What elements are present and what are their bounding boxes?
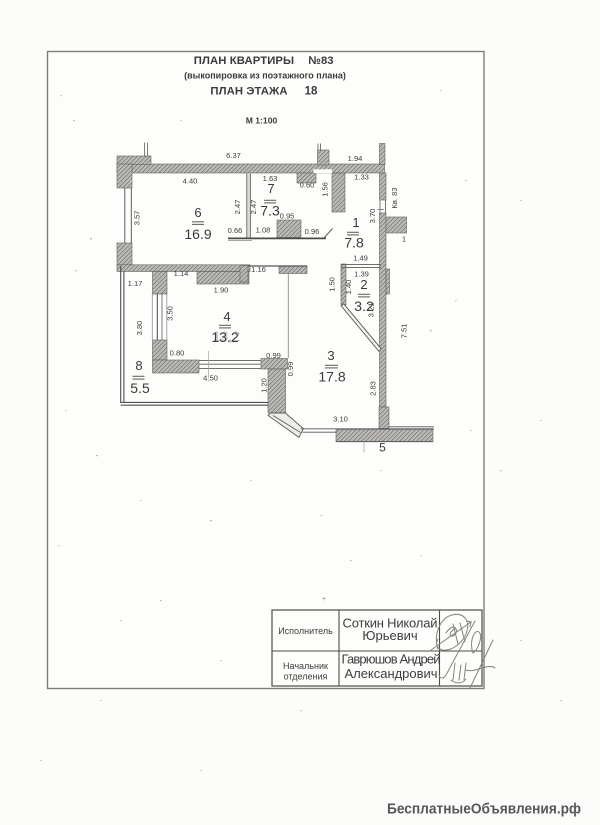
svg-text:1.56: 1.56	[321, 182, 330, 197]
svg-text:1.16: 1.16	[251, 265, 266, 274]
svg-text:№83: №83	[308, 55, 333, 67]
svg-text:1.33: 1.33	[354, 173, 369, 182]
svg-text:Кв. 83: Кв. 83	[390, 187, 399, 208]
svg-text:4.50: 4.50	[203, 374, 218, 383]
svg-text:Юрьевич: Юрьевич	[362, 628, 417, 643]
svg-text:6: 6	[194, 205, 201, 220]
svg-text:4: 4	[223, 309, 230, 324]
svg-text:0.60: 0.60	[300, 181, 315, 190]
svg-text:0.99: 0.99	[286, 362, 295, 377]
svg-text:1.94: 1.94	[348, 154, 363, 163]
svg-text:1: 1	[352, 215, 359, 230]
svg-text:1.50: 1.50	[328, 277, 337, 292]
svg-text:1.90: 1.90	[214, 286, 229, 295]
svg-text:0.80: 0.80	[170, 349, 185, 358]
svg-text:18: 18	[305, 86, 318, 98]
svg-text:17.8: 17.8	[318, 369, 345, 385]
svg-text:1.14: 1.14	[174, 269, 189, 278]
svg-text:0.66: 0.66	[228, 226, 243, 235]
svg-text:2.47: 2.47	[233, 200, 242, 215]
svg-text:0.95: 0.95	[280, 212, 295, 221]
svg-text:3.70: 3.70	[368, 209, 377, 224]
svg-text:Александрович: Александрович	[345, 666, 438, 681]
svg-text:3.50: 3.50	[166, 306, 175, 321]
svg-text:2.47: 2.47	[249, 200, 258, 215]
svg-text:3.10: 3.10	[333, 415, 348, 424]
svg-text:ПЛАН КВАРТИРЫ: ПЛАН КВАРТИРЫ	[194, 55, 294, 67]
svg-text:М 1:100: М 1:100	[246, 116, 278, 126]
svg-text:Гаврюшов Андрей: Гаврюшов Андрей	[342, 652, 441, 667]
svg-text:(выкопировка из поэтажного пл: (выкопировка из поэтажного плана)	[184, 71, 346, 81]
svg-text:0.96: 0.96	[305, 227, 320, 236]
svg-text:1.20: 1.20	[260, 378, 269, 393]
svg-text:7: 7	[267, 181, 274, 196]
svg-text:1.08: 1.08	[256, 226, 271, 235]
svg-text:16.9: 16.9	[184, 226, 211, 242]
svg-text:0.99: 0.99	[266, 351, 281, 360]
svg-text:8: 8	[135, 358, 142, 373]
svg-text:1.17: 1.17	[128, 279, 143, 288]
svg-text:1.49: 1.49	[353, 254, 368, 263]
svg-text:ПЛАН ЭТАЖА: ПЛАН ЭТАЖА	[210, 86, 287, 98]
svg-text:7.3: 7.3	[260, 203, 280, 219]
svg-text:+: +	[322, 596, 326, 603]
svg-text:3.57: 3.57	[133, 211, 142, 226]
svg-text:Начальник: Начальник	[283, 661, 328, 671]
svg-text:3.80: 3.80	[135, 321, 144, 336]
svg-text:7.8: 7.8	[344, 235, 364, 251]
svg-text:2: 2	[360, 277, 367, 292]
svg-text:3: 3	[327, 348, 334, 363]
svg-text:7.51: 7.51	[400, 324, 409, 339]
svg-text:5.5: 5.5	[130, 380, 150, 396]
svg-text:6.37: 6.37	[226, 151, 241, 160]
svg-text:2.83: 2.83	[369, 381, 378, 396]
svg-text:4.40: 4.40	[183, 177, 198, 186]
svg-text:Исполнитель: Исполнитель	[278, 626, 333, 636]
svg-text:отделения: отделения	[284, 672, 328, 682]
svg-text:5: 5	[379, 441, 386, 455]
svg-text:БесплатныеОбъявления.рф: БесплатныеОбъявления.рф	[387, 801, 581, 818]
svg-text:3.2: 3.2	[354, 298, 374, 314]
svg-text:1: 1	[402, 235, 406, 244]
svg-text:1.40: 1.40	[344, 280, 353, 295]
svg-text:13.2: 13.2	[211, 329, 238, 345]
